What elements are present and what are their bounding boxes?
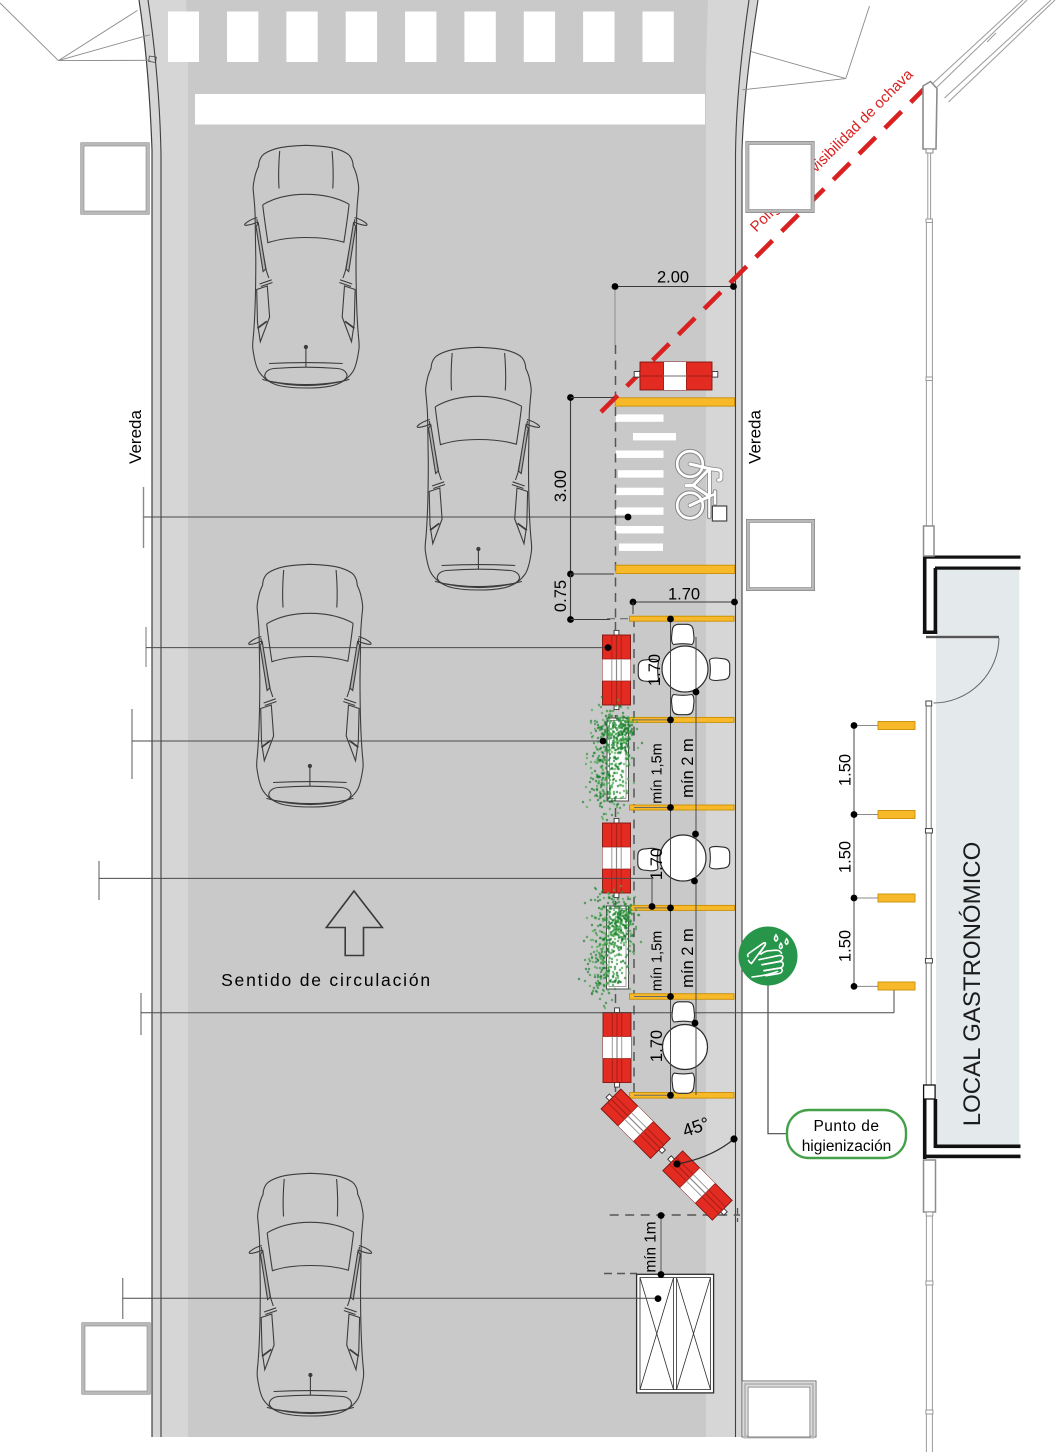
- svg-text:mín 2 m: mín 2 m: [679, 928, 697, 988]
- svg-text:1.70: 1.70: [646, 654, 664, 686]
- svg-text:mín 2 m: mín 2 m: [679, 738, 697, 798]
- svg-text:2.00: 2.00: [657, 269, 689, 287]
- svg-text:higienización: higienización: [802, 1138, 892, 1155]
- svg-text:mín 1m: mín 1m: [643, 1222, 660, 1273]
- svg-text:Punto de: Punto de: [813, 1118, 879, 1135]
- svg-text:3.00: 3.00: [552, 470, 570, 502]
- svg-text:0.75: 0.75: [552, 580, 570, 612]
- svg-text:Vereda: Vereda: [746, 410, 765, 464]
- svg-text:1.50: 1.50: [837, 841, 855, 873]
- svg-text:mín 1,5m: mín 1,5m: [650, 743, 666, 803]
- svg-text:1.70: 1.70: [668, 586, 700, 604]
- svg-text:1.50: 1.50: [837, 930, 855, 962]
- svg-text:1.70: 1.70: [648, 848, 666, 880]
- svg-text:Sentido de circulación: Sentido de circulación: [221, 970, 432, 990]
- svg-text:1.50: 1.50: [837, 754, 855, 786]
- svg-text:LOCAL GASTRONÓMICO: LOCAL GASTRONÓMICO: [959, 842, 986, 1126]
- svg-text:mín 1,5m: mín 1,5m: [650, 931, 666, 991]
- svg-text:1.70: 1.70: [648, 1030, 666, 1062]
- svg-text:Vereda: Vereda: [126, 410, 145, 464]
